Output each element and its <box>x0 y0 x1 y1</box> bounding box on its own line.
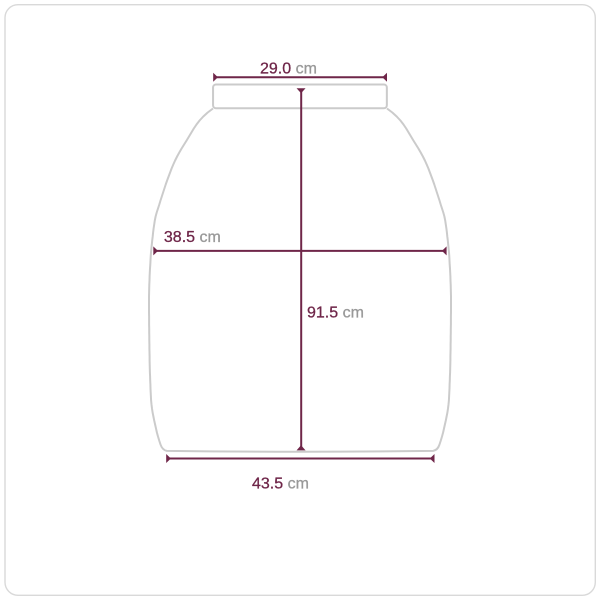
svg-text:29.0 cm: 29.0 cm <box>260 61 317 78</box>
svg-text:43.5 cm: 43.5 cm <box>252 475 309 492</box>
svg-text:38.5 cm: 38.5 cm <box>164 229 221 246</box>
svg-text:91.5 cm: 91.5 cm <box>307 304 364 321</box>
